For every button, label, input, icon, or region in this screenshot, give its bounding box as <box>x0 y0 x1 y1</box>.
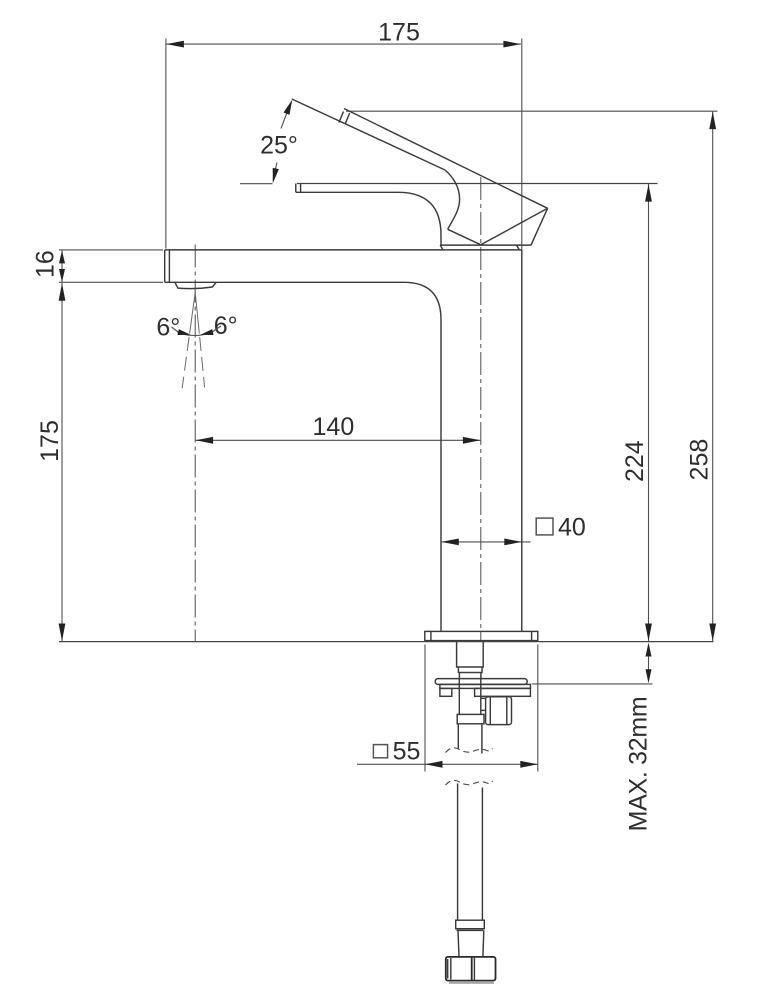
svg-text:MAX. 32mm: MAX. 32mm <box>625 697 653 832</box>
svg-text:224: 224 <box>621 440 649 482</box>
svg-text:175: 175 <box>378 19 420 47</box>
svg-text:40: 40 <box>558 514 586 542</box>
svg-text:258: 258 <box>686 439 714 481</box>
svg-text:16: 16 <box>32 250 60 278</box>
svg-text:175: 175 <box>36 420 64 462</box>
svg-text:25°: 25° <box>260 132 298 160</box>
svg-text:6°: 6° <box>156 314 180 342</box>
svg-text:140: 140 <box>313 413 355 441</box>
svg-text:55: 55 <box>393 738 421 766</box>
svg-text:6°: 6° <box>214 312 238 340</box>
